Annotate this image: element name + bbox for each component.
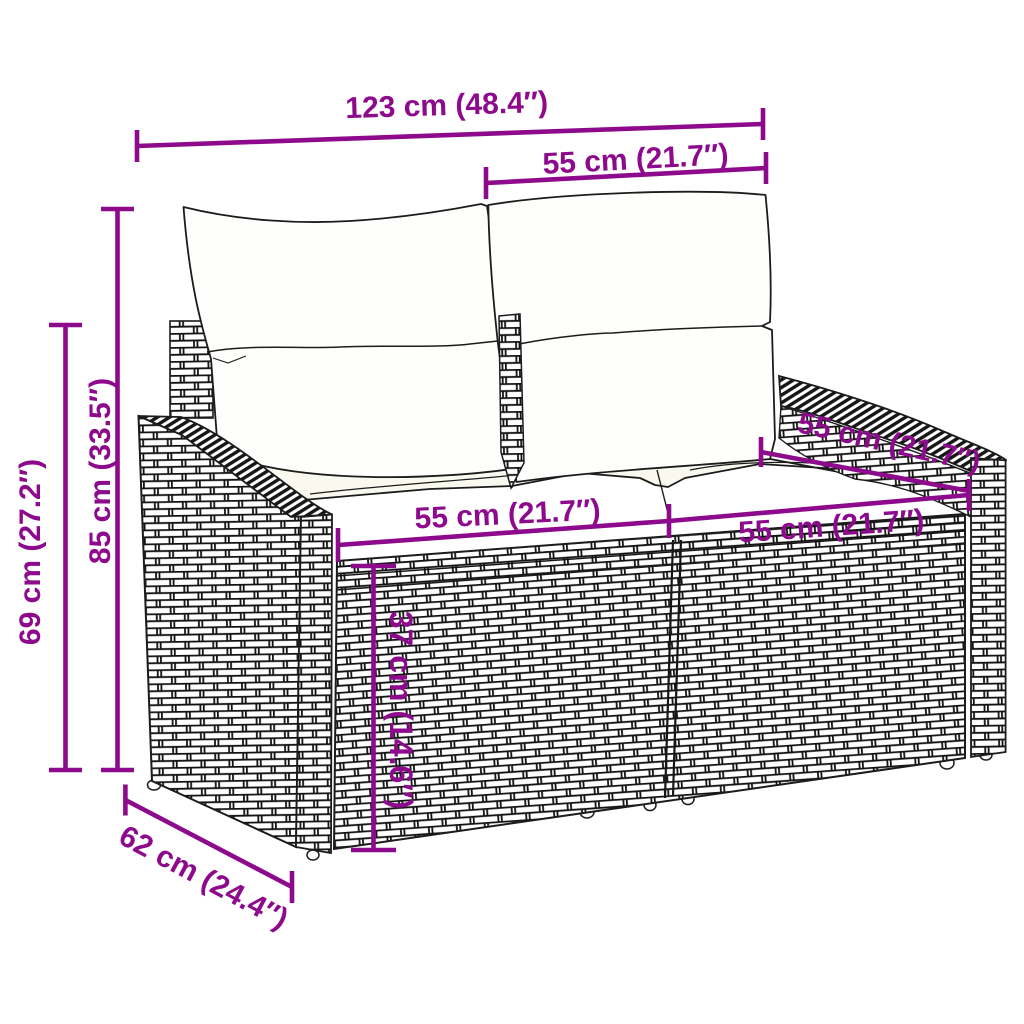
svg-text:85 cm (33.5″): 85 cm (33.5″) — [84, 378, 117, 564]
svg-text:69 cm (27.2″): 69 cm (27.2″) — [14, 459, 47, 645]
svg-text:37 cm (14.6″): 37 cm (14.6″) — [383, 611, 419, 810]
svg-text:123 cm (48.4″): 123 cm (48.4″) — [345, 86, 549, 125]
